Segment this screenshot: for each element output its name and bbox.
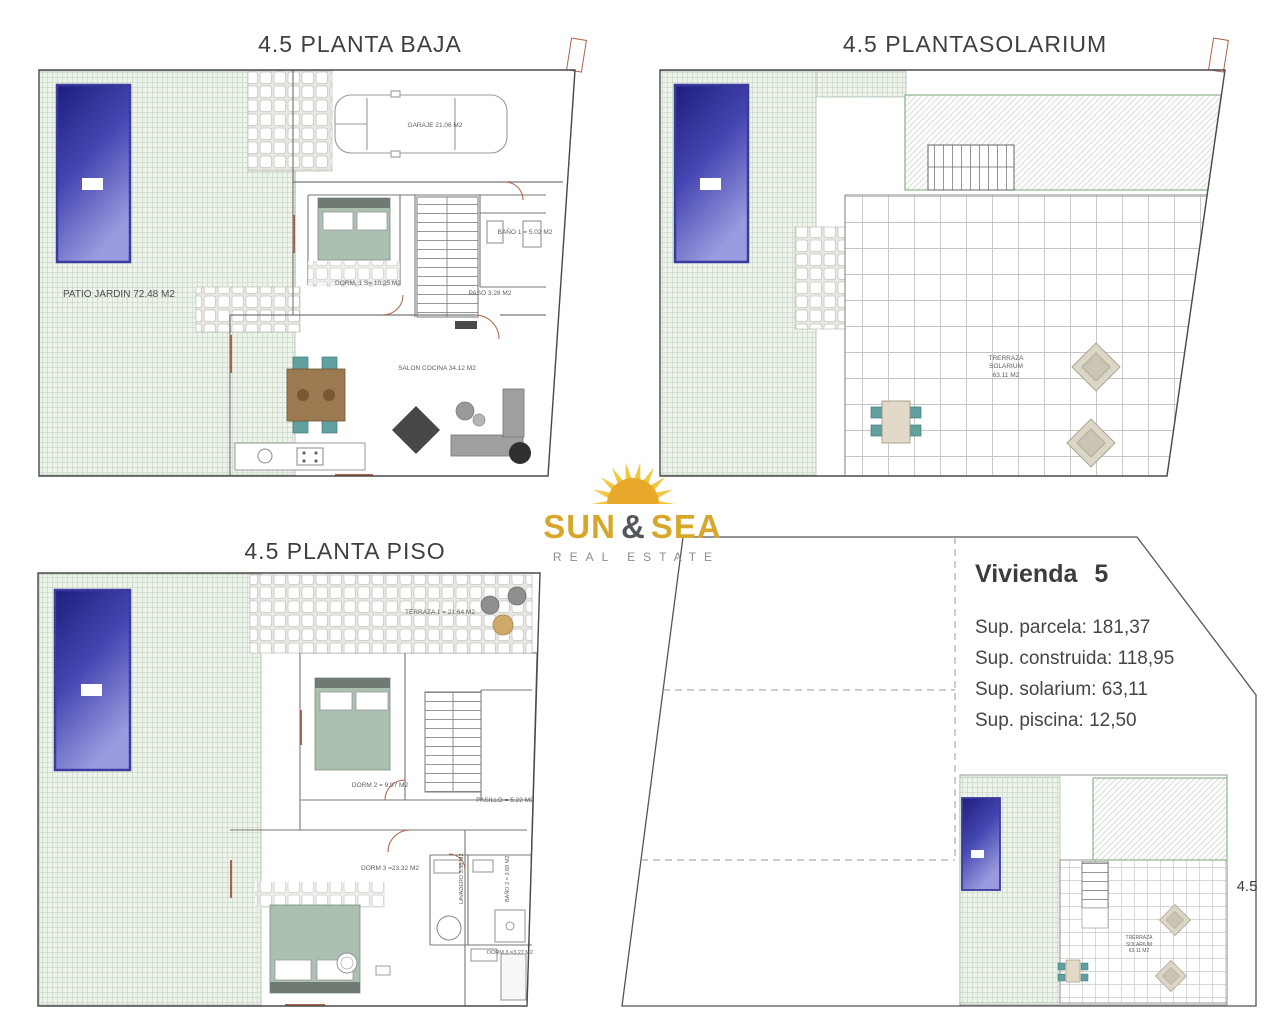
dorm3-label: DORM 3 =23.32 M2 <box>315 865 465 873</box>
planta-piso-quadrant: 4.5 PLANTA PISO <box>35 530 610 1015</box>
terraza1-label: TERRAZA 1 = 21,64 M2 <box>365 609 515 617</box>
floorplan-sheet: 4.5 PLANTA BAJA <box>0 0 1280 1024</box>
patio-jardin-label: PATIO JARDIN 72.48 M2 <box>63 289 233 302</box>
planta-piso-drawing <box>35 530 610 1015</box>
plantasolarium-title: 4.5 PLANTASOLARIUM <box>775 31 1175 58</box>
garaje-label: GARAJE 21.06 M2 <box>365 122 505 130</box>
terraza-solarium-label: TRERRAZA SOLARIUM 63.11 M2 <box>966 355 1046 380</box>
bano3-label: DORM 3 =3.27 M2 <box>435 950 585 957</box>
bano2-label: BAÑO 2 = 3.69 M2 <box>505 856 511 902</box>
sup-piscina: Sup. piscina: 12,50 <box>975 705 1174 736</box>
dorm1-label: DORM. 1 S= 10.25 M2 <box>303 280 433 288</box>
paso-label: PASO 3.28 M2 <box>430 290 550 298</box>
plantasolarium-drawing <box>655 15 1255 495</box>
planta-piso-title: 4.5 PLANTA PISO <box>145 538 545 565</box>
planta-baja-drawing <box>35 15 610 495</box>
mini-terraza-solarium-label: TRERRAZA SOLARIUM 63.11 M2 <box>1110 935 1168 955</box>
plot-side-label: 4.5 <box>1227 878 1267 897</box>
sup-solarium: Sup. solarium: 63,11 <box>975 674 1174 705</box>
vivienda-quadrant: Vivienda 5 Sup. parcela: 181,37 Sup. con… <box>615 530 1275 1020</box>
vivienda-title: Vivienda 5 <box>975 560 1108 589</box>
salon-cocina-label: SALON COCINA 34.12 M2 <box>357 365 517 373</box>
vivienda-plot-drawing <box>615 530 1275 1020</box>
logo-word-sea: SEA <box>651 508 722 545</box>
vivienda-specs: Sup. parcela: 181,37 Sup. construida: 11… <box>975 612 1174 736</box>
pasillo-label: PASILLO = 5.22 M2 <box>435 797 575 805</box>
planta-baja-title: 4.5 PLANTA BAJA <box>200 31 520 58</box>
lavadero-label: LAVADERO 3.38 M2 <box>459 853 465 904</box>
logo-wordmark: SUN&SEA <box>535 510 730 543</box>
sup-parcela: Sup. parcela: 181,37 <box>975 612 1174 643</box>
planta-baja-quadrant: 4.5 PLANTA BAJA <box>35 15 610 495</box>
sun-and-sea-logo: SUN&SEA REAL ESTATE <box>535 446 730 564</box>
bano1-label: BAÑO 1 = 5.02 M2 <box>465 229 585 237</box>
logo-tagline: REAL ESTATE <box>535 550 730 564</box>
sup-construida: Sup. construida: 118,95 <box>975 643 1174 674</box>
sun-icon <box>573 446 693 508</box>
logo-word-sun: SUN <box>543 508 616 545</box>
dorm2-label: DORM 2 = 9.97 M2 <box>305 782 455 790</box>
logo-ampersand: & <box>616 508 651 545</box>
plantasolarium-quadrant: 4.5 PLANTASOLARIUM <box>655 15 1255 495</box>
